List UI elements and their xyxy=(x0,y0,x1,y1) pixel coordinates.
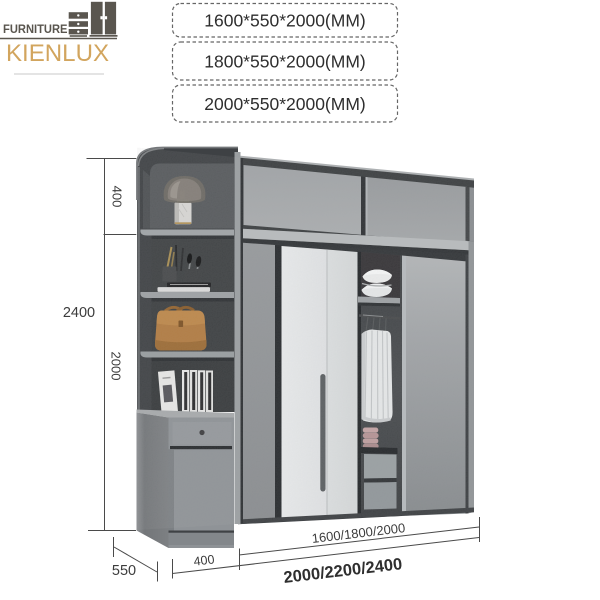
svg-text:2000*550*2000(MM): 2000*550*2000(MM) xyxy=(204,94,366,114)
svg-text:400: 400 xyxy=(110,186,125,208)
svg-text:KIENLUX: KIENLUX xyxy=(6,40,109,67)
svg-text:400: 400 xyxy=(193,552,215,568)
svg-text:550: 550 xyxy=(112,563,136,579)
svg-text:1800*550*2000(MM): 1800*550*2000(MM) xyxy=(204,52,366,72)
svg-text:FURNITURE: FURNITURE xyxy=(3,22,68,36)
svg-text:1600*550*2000(MM): 1600*550*2000(MM) xyxy=(204,11,366,31)
svg-text:2400: 2400 xyxy=(63,305,95,321)
svg-text:2000: 2000 xyxy=(109,352,124,381)
